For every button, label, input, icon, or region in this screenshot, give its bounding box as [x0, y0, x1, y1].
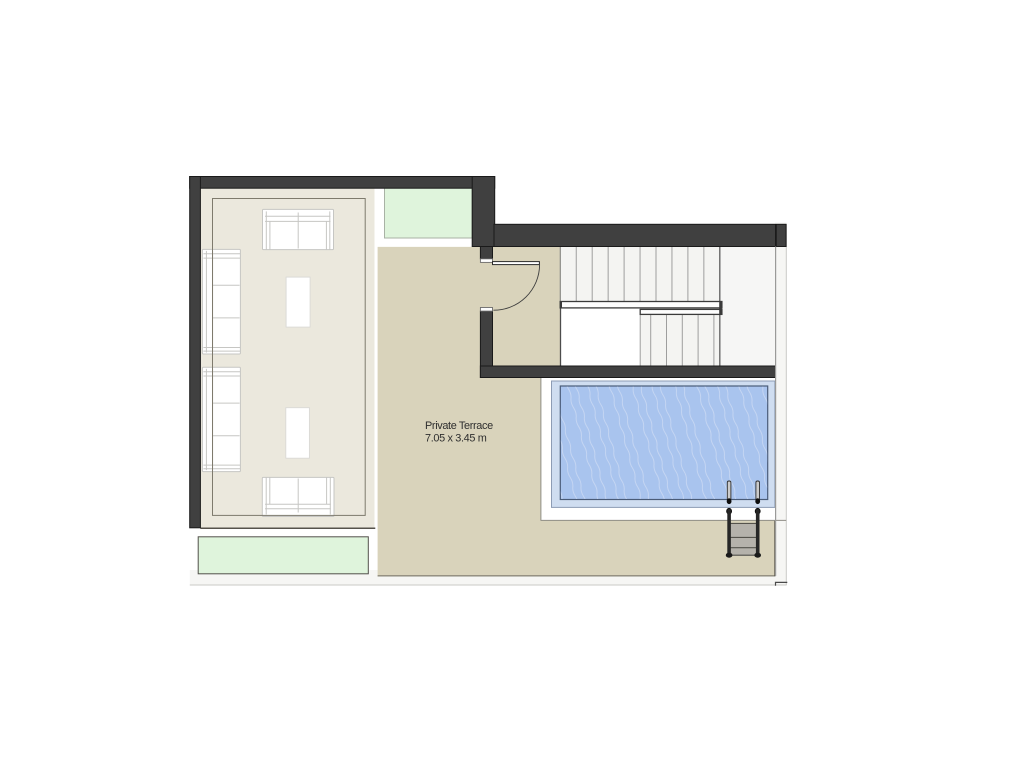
- svg-text:Private Terrace: Private Terrace: [425, 420, 493, 432]
- svg-text:7.05 x 3.45 m: 7.05 x 3.45 m: [425, 432, 487, 444]
